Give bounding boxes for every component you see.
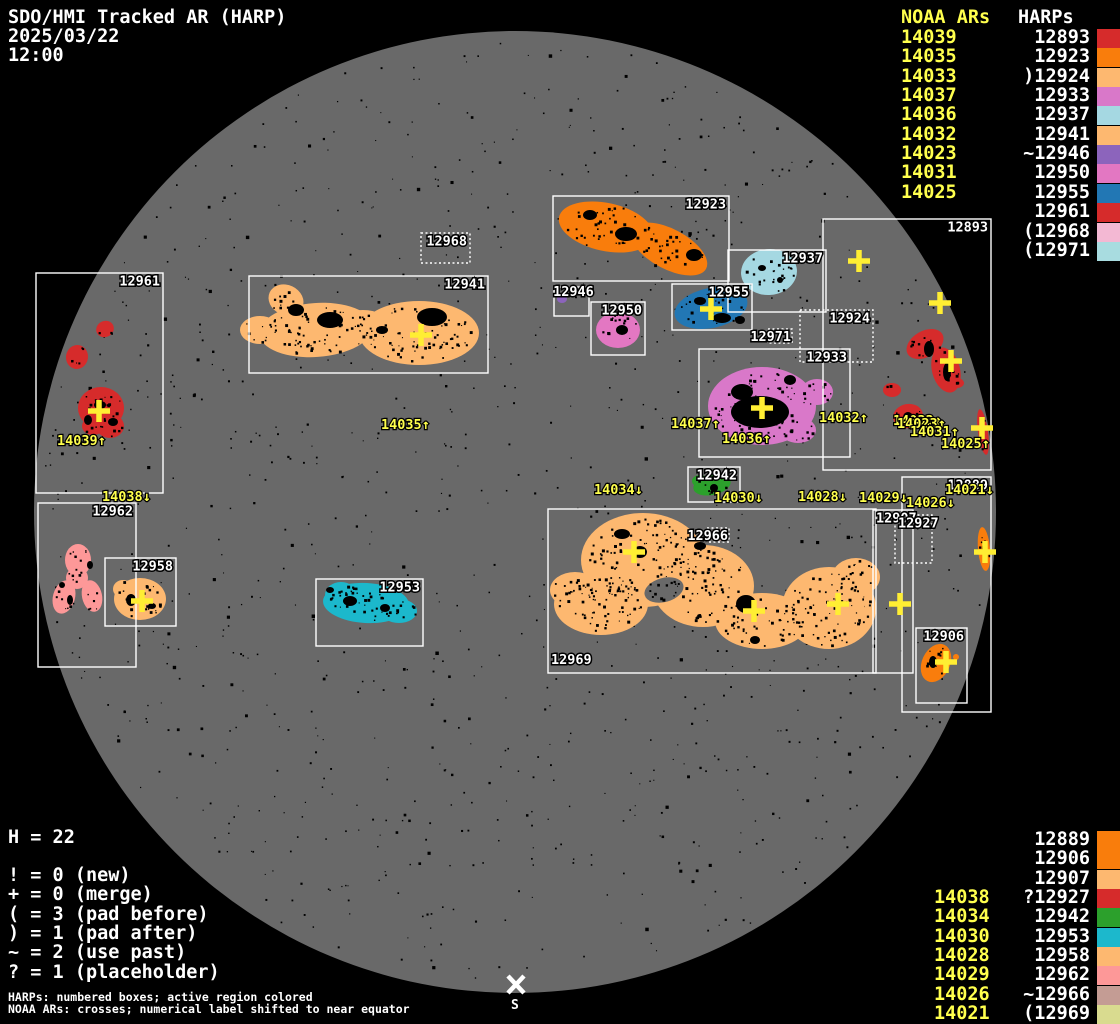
solar-disk (34, 31, 996, 993)
noaa-ar-label: 14030↓ (714, 490, 763, 506)
status-counter-item: + = 0 (merge) (8, 885, 153, 904)
noaa-column-header: NOAA ARs (901, 8, 990, 27)
harp-count-line: H = 22 (8, 828, 75, 847)
harp-box-label: 12950 (601, 303, 642, 319)
south-pole-label: S (511, 998, 519, 1013)
solar-disk-plot: 1296112962129581294112968129231294612950… (0, 0, 1120, 1024)
footnote-noaa: NOAA ARs: crosses; numerical label shift… (8, 1003, 410, 1015)
noaa-ar-label: 14038↓ (102, 489, 151, 505)
harp-box-label: 12924 (829, 311, 870, 327)
noaa-ar-label: 14029↓ (859, 490, 908, 506)
page-title: SDO/HMI Tracked AR (HARP) (8, 8, 286, 27)
noaa-ar-label: 14028↓ (798, 489, 847, 505)
noaa-ar-label: 14034↓ (594, 482, 643, 498)
status-counter-item: ~ = 2 (use past) (8, 943, 186, 962)
harp-column-header: HARPs (1018, 8, 1074, 27)
harp-map-screen: 1296112962129581294112968129231294612950… (0, 0, 1120, 1024)
noaa-ar-label: 14032↑ (819, 410, 868, 426)
status-counter-item: ( = 3 (pad before) (8, 905, 208, 924)
status-counter-item: ? = 1 (placeholder) (8, 963, 220, 982)
noaa-ar-label: 14039↑ (57, 433, 106, 449)
harp-box-label: 12927 (898, 516, 939, 532)
noaa-ar-label: 14037↑ (671, 416, 720, 432)
harp-box-label: 12961 (119, 274, 160, 290)
harp-box-label: 12937 (782, 251, 823, 267)
harp-box-label: 12969 (551, 652, 592, 668)
harp-box-label: 12966 (687, 528, 728, 544)
harp-box-label: 12958 (132, 559, 173, 575)
noaa-ar-label: 14025↑ (941, 436, 990, 452)
noaa-ar-label: 14021↓ (945, 482, 994, 498)
harp-box-label: 12962 (92, 504, 133, 520)
status-counter-item: ! = 0 (new) (8, 866, 131, 885)
harp-box-label: 12968 (426, 234, 467, 250)
harp-box-label: 12946 (553, 284, 594, 300)
noaa-ar-label: 14036↑ (722, 431, 771, 447)
harp-box-label: 12942 (696, 468, 737, 484)
harp-box-label: 12933 (806, 350, 847, 366)
harp-box-label: 12941 (444, 277, 485, 293)
harp-box-label: 12906 (923, 629, 964, 645)
time-label: 12:00 (8, 46, 64, 65)
noaa-ar-label: 14035↑ (381, 417, 430, 433)
status-counter-item: ) = 1 (pad after) (8, 924, 197, 943)
harp-box-label: 12953 (379, 580, 420, 596)
harp-box-label: 12893 (947, 220, 988, 236)
harp-box-label: 12955 (708, 285, 749, 301)
harp-box-label: 12923 (685, 197, 726, 213)
harp-box-label: 12971 (750, 329, 791, 345)
date-label: 2025/03/22 (8, 27, 119, 46)
